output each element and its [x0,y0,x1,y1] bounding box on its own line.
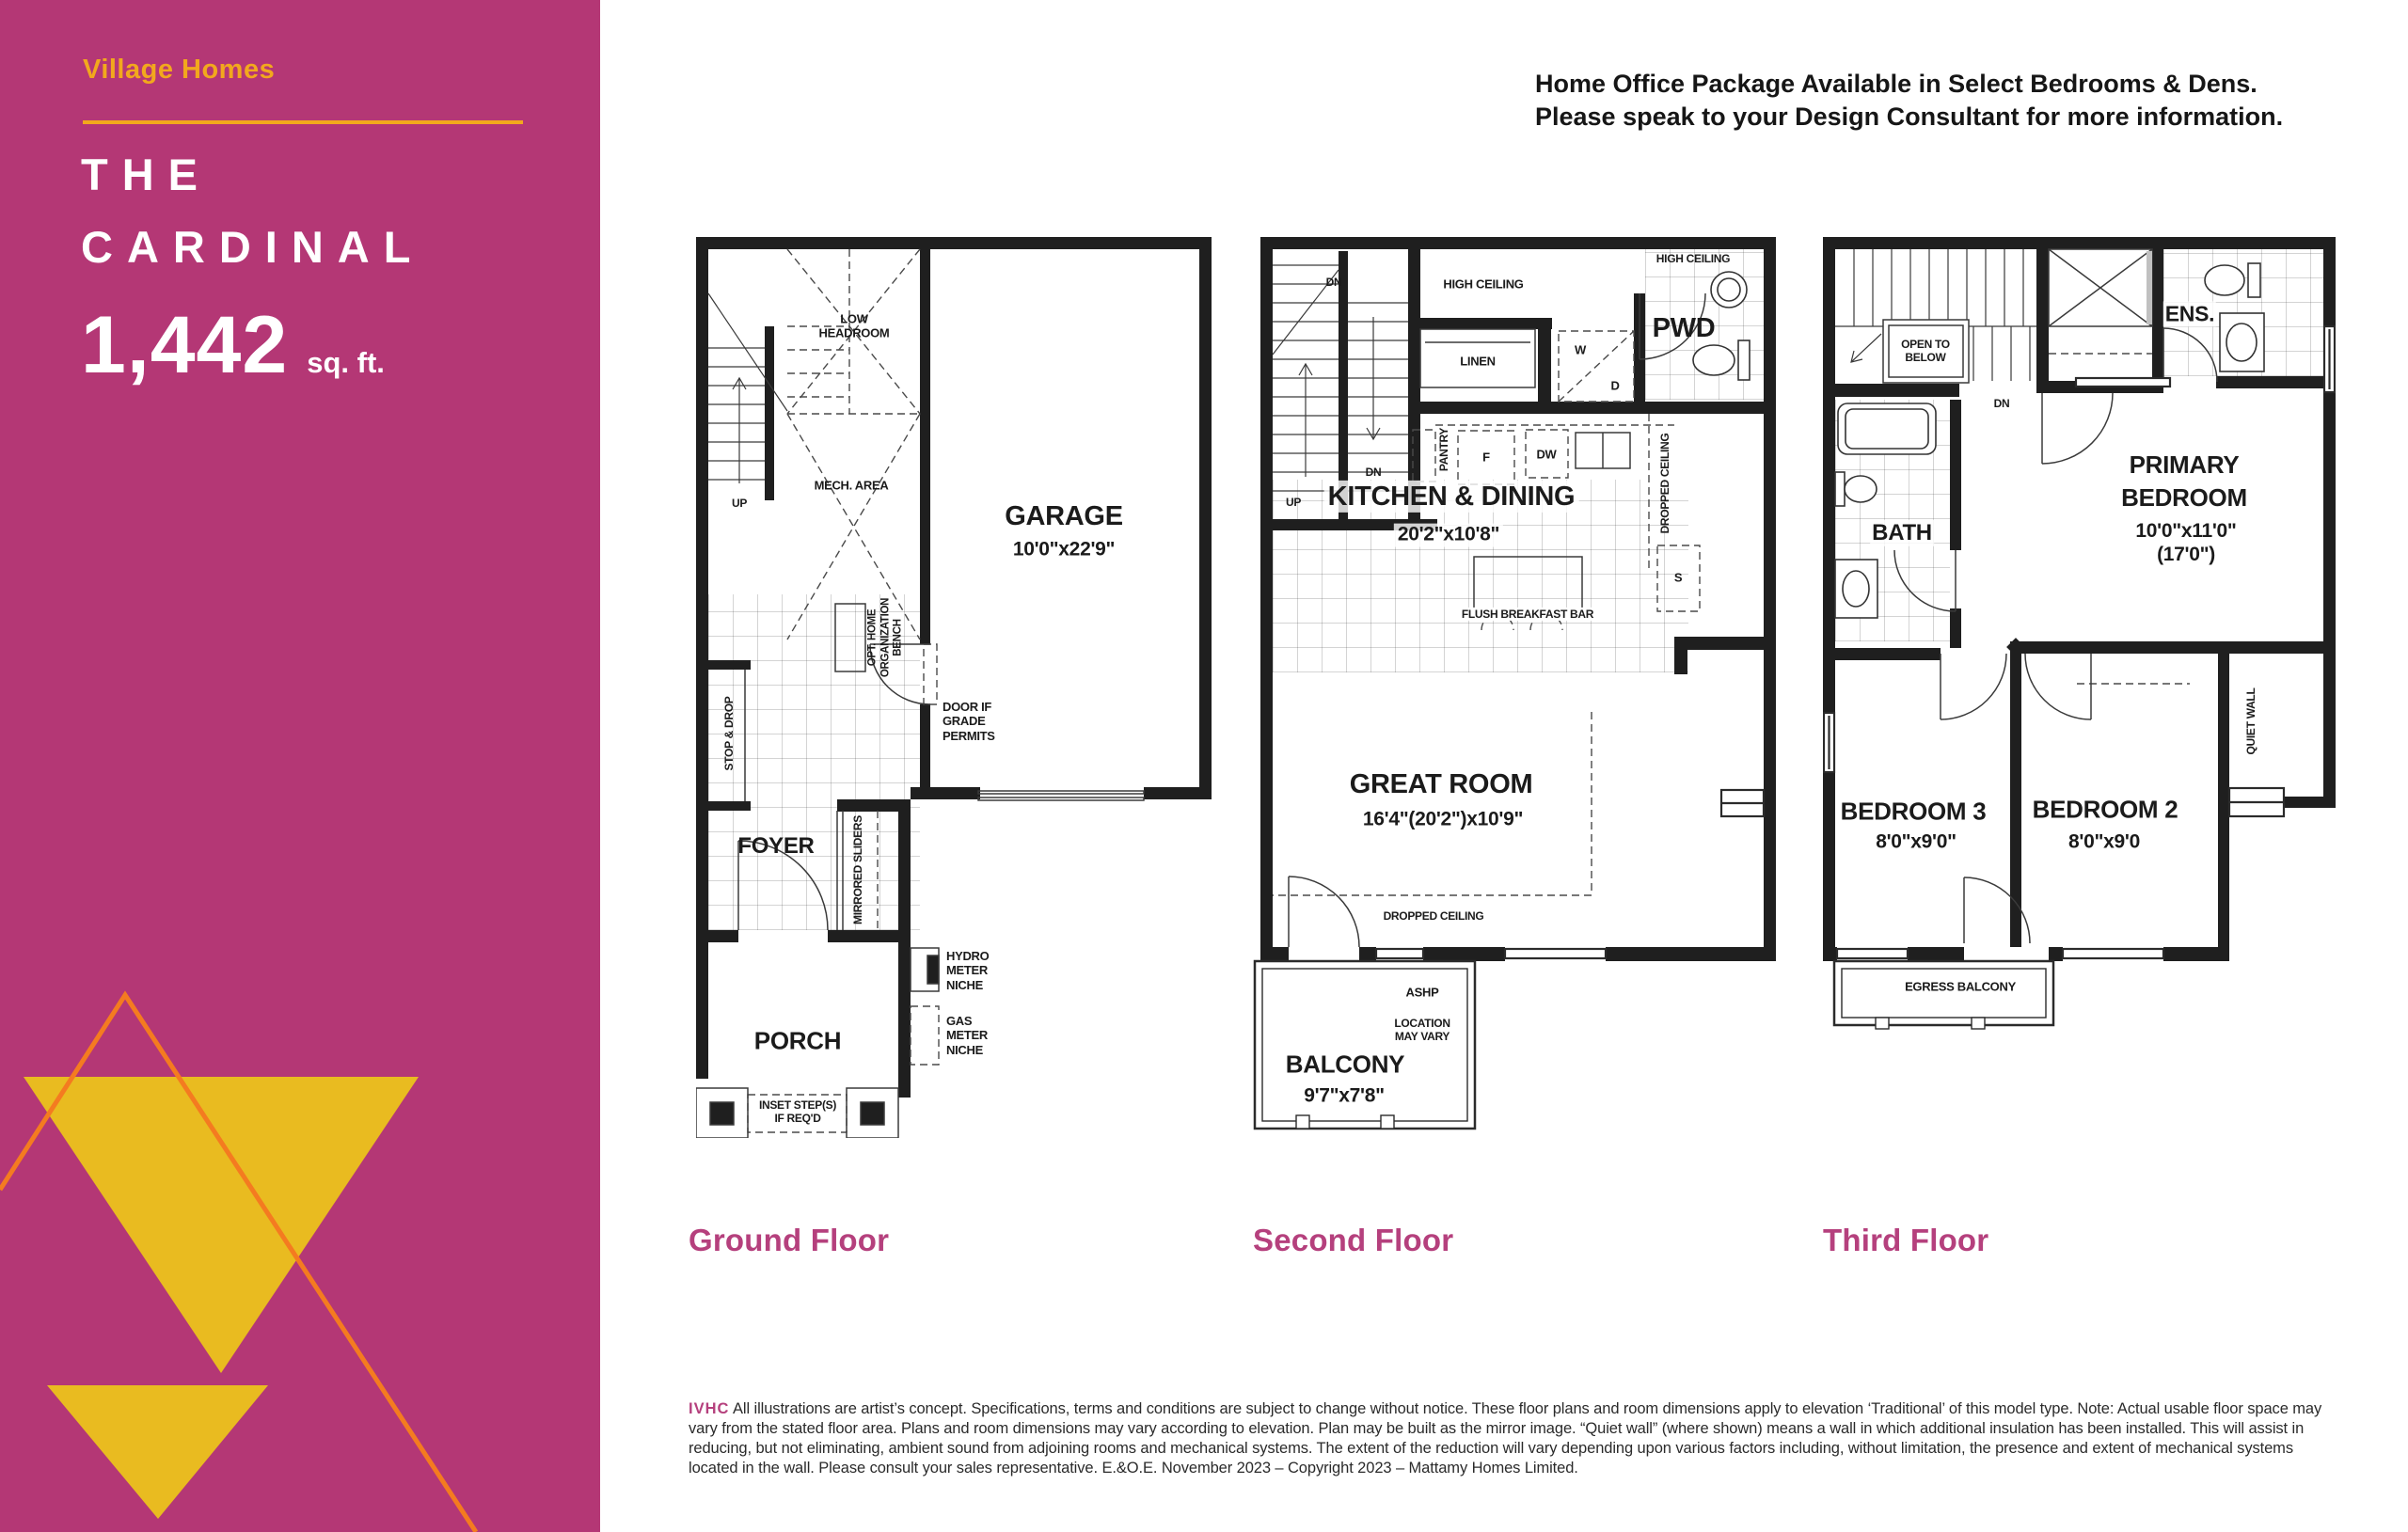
label-gas-niche: GAS METER NICHE [946,1014,988,1057]
label-up: UP [732,497,747,510]
disclaimer-code: IVHC [689,1400,729,1417]
second-floor-plan: DN DN UP HIGH CEILING LINEN W D PWD HIGH… [1244,237,1776,1154]
sidebar: Village Homes THE CARDINAL 1,442 sq. ft. [0,0,600,1532]
home-office-note-line2: Please speak to your Design Consultant f… [1535,101,2283,134]
label-dishwasher: DW [1536,447,1556,461]
brand-triangles-decoration [0,978,600,1532]
ground-floor-plan: LOW HEADROOM MECH. AREA UP GARAGE 10'0"x… [696,237,1212,1138]
third-egress-balcony [1834,961,2053,1029]
label-dropped-ceiling-right: DROPPED CEILING [1658,434,1671,534]
label-balcony-dim: 9'7"x7'8" [1304,1085,1385,1109]
caption-third-floor: Third Floor [1823,1223,1988,1258]
label-open-to-below: OPEN TO BELOW [1901,338,1950,364]
label-great-room: GREAT ROOM [1350,768,1533,800]
label-kitchen-dim: 20'2"x10'8" [1394,524,1503,547]
third-floor-drawing [1823,237,2336,1032]
label-bath: BATH [1870,520,1934,546]
sqft-number: 1,442 [81,299,288,392]
label-bedroom2-dim: 8'0"x9'0 [2068,831,2140,855]
model-title-line1: THE [81,149,212,200]
third-floor-plan: OPEN TO BELOW DN ENS. BATH PRIMARY BEDRO… [1823,237,2336,1032]
label-primary-bedroom: PRIMARY BEDROOM [2121,449,2247,514]
label-washer: W [1575,342,1586,356]
third-closet-shower [2049,249,2152,326]
label-pantry: PANTRY [1437,428,1450,471]
label-dryer: D [1610,378,1619,392]
label-door-if-grade: DOOR IF GRADE PERMITS [943,700,995,743]
label-primary-dim: 10'0"x11'0"(17'0") [2112,520,2261,567]
label-flush-breakfast-bar: FLUSH BREAKFAST BAR [1459,608,1596,621]
label-dn-third: DN [1994,397,2010,410]
label-dn-b: DN [1366,466,1382,479]
model-title-line2: CARDINAL [81,221,424,273]
disclaimer-body: All illustrations are artist’s concept. … [689,1400,2321,1477]
ground-floor-drawing [696,237,1212,1138]
home-office-note-line1: Home Office Package Available in Select … [1535,68,2283,101]
label-hydro-niche: HYDRO METER NICHE [946,949,989,992]
label-ashp-note: LOCATION MAY VARY [1394,1017,1450,1043]
home-office-note: Home Office Package Available in Select … [1535,68,2283,134]
label-mirrored-sliders: MIRRORED SLIDERS [851,815,864,924]
label-bedroom3: BEDROOM 3 [1841,798,1987,827]
label-bedroom2: BEDROOM 2 [2033,796,2178,825]
label-balcony: BALCONY [1286,1050,1404,1080]
label-mech-area: MECH. AREA [815,478,889,492]
caption-second-floor: Second Floor [1253,1223,1453,1258]
caption-ground-floor: Ground Floor [689,1223,889,1258]
label-garage-dim: 10'0"x22'9" [1013,539,1115,562]
label-bedroom3-dim: 8'0"x9'0" [1876,831,1956,855]
label-pwd: PWD [1653,312,1716,344]
label-inset-steps: INSET STEP(S) IF REQ'D [756,1098,839,1125]
brand-underline [83,120,523,124]
label-stop-and-drop: STOP & DROP [722,697,736,771]
brochure-page: Village Homes THE CARDINAL 1,442 sq. ft.… [0,0,2408,1532]
label-porch: PORCH [754,1027,841,1056]
label-high-ceiling-main: HIGH CEILING [1443,276,1523,291]
label-kitchen-dining: KITCHEN & DINING [1324,481,1579,513]
label-ensuite: ENS. [2163,301,2216,326]
label-dropped-ceiling-bottom: DROPPED CEILING [1384,909,1484,923]
label-up-second: UP [1286,496,1301,509]
label-quiet-wall: QUIET WALL [2244,688,2257,755]
ground-stairs [708,293,787,483]
label-egress-balcony: EGRESS BALCONY [1902,979,2019,993]
third-closet-rods [2049,354,2190,684]
label-foyer: FOYER [737,833,814,860]
label-ashp: ASHP [1406,985,1439,999]
sqft-unit: sq. ft. [307,346,385,380]
label-linen: LINEN [1460,354,1496,368]
label-sink-s: S [1674,570,1682,584]
square-footage: 1,442 sq. ft. [81,299,385,392]
label-garage: GARAGE [1005,500,1123,532]
label-high-ceiling-pwd: HIGH CEILING [1656,252,1730,265]
label-dn-a: DN [1326,276,1342,289]
label-great-room-dim: 16'4"(20'2")x10'9" [1363,809,1523,832]
label-opt-home-bench: OPT. HOME ORGANIZATION BENCH [867,598,906,677]
ground-details [696,604,1144,1138]
label-fridge: F [1482,450,1490,464]
legal-disclaimer: IVHC All illustrations are artist’s conc… [689,1399,2344,1478]
second-floor-drawing [1244,237,1776,1154]
label-low-headroom: LOW HEADROOM [819,312,890,341]
brand-name: Village Homes [83,55,275,86]
